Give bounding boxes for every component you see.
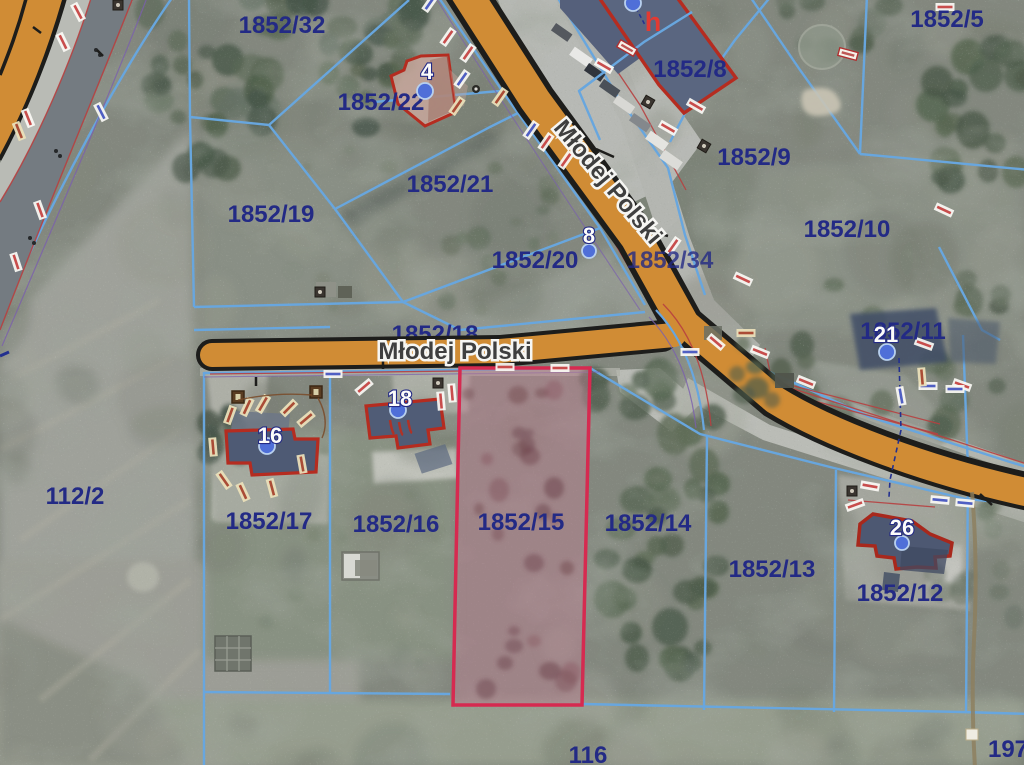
svg-text:4: 4 bbox=[421, 59, 434, 84]
svg-text:1852/10: 1852/10 bbox=[804, 216, 891, 243]
svg-text:112/2: 112/2 bbox=[46, 483, 105, 510]
svg-text:h: h bbox=[645, 7, 662, 37]
svg-text:1852/22: 1852/22 bbox=[338, 89, 425, 116]
svg-text:18: 18 bbox=[388, 386, 412, 411]
svg-text:1852/9: 1852/9 bbox=[717, 144, 790, 171]
svg-text:Młodej Polski: Młodej Polski bbox=[378, 338, 531, 365]
svg-text:21: 21 bbox=[874, 322, 898, 347]
svg-text:1852/34: 1852/34 bbox=[627, 247, 714, 274]
svg-text:1852/17: 1852/17 bbox=[226, 508, 313, 535]
svg-text:1852/19: 1852/19 bbox=[228, 201, 315, 228]
svg-text:1852/14: 1852/14 bbox=[605, 510, 692, 537]
svg-text:1852/16: 1852/16 bbox=[353, 511, 440, 538]
svg-text:8: 8 bbox=[583, 223, 595, 248]
svg-text:16: 16 bbox=[258, 423, 282, 448]
svg-text:1852/13: 1852/13 bbox=[729, 556, 816, 583]
svg-text:1852/20: 1852/20 bbox=[492, 247, 579, 274]
svg-text:1852/5: 1852/5 bbox=[910, 6, 983, 33]
svg-text:197: 197 bbox=[988, 736, 1024, 763]
svg-text:1852/8: 1852/8 bbox=[653, 56, 726, 83]
svg-text:1852/32: 1852/32 bbox=[239, 12, 326, 39]
svg-text:1852/21: 1852/21 bbox=[407, 171, 494, 198]
svg-text:1852/15: 1852/15 bbox=[478, 509, 565, 536]
svg-text:1852/12: 1852/12 bbox=[857, 580, 944, 607]
svg-text:116: 116 bbox=[569, 742, 608, 765]
svg-text:26: 26 bbox=[890, 515, 914, 540]
